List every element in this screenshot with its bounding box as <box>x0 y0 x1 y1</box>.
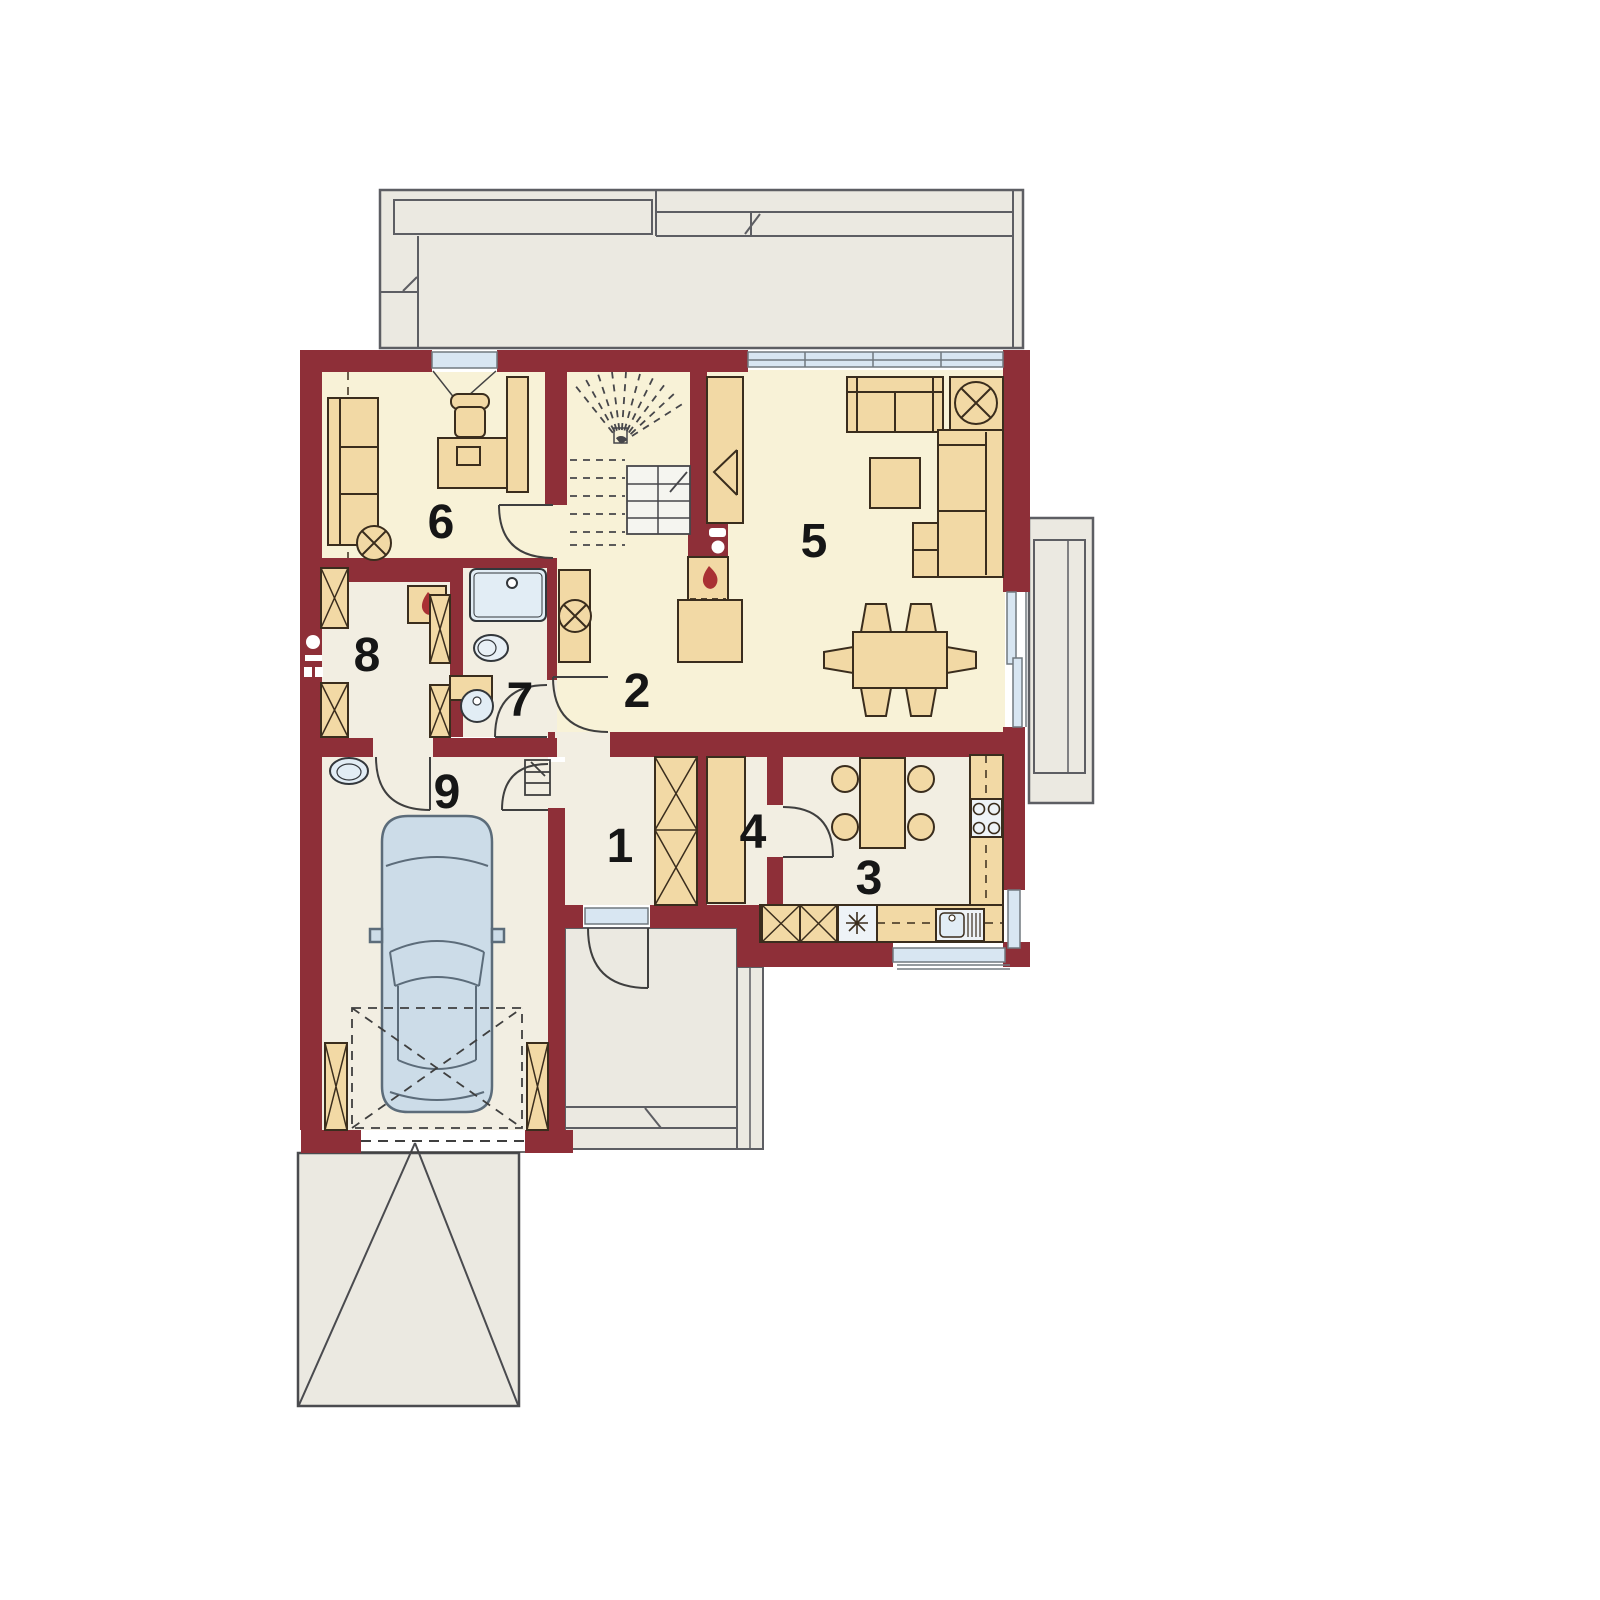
utility-cabinet-left-2 <box>321 683 348 737</box>
kitchen-chair <box>832 766 858 792</box>
kitchen-table <box>860 758 905 848</box>
chimney-vent <box>709 528 726 537</box>
porch-slab <box>565 928 737 1107</box>
dining-chair <box>947 647 976 673</box>
washbasin-tap <box>473 697 481 705</box>
toilet-icon <box>474 635 508 661</box>
terrace-top-slab <box>380 190 1023 348</box>
shower-drain <box>507 578 517 588</box>
kitchen-cabinet-x <box>762 905 800 942</box>
label-hall: 2 <box>624 665 651 718</box>
driveway <box>298 1143 519 1406</box>
kitchen-chair <box>832 814 858 840</box>
terrace-top <box>380 190 1023 348</box>
floor-plan-svg: 1 2 3 4 5 6 7 8 9 <box>0 0 1600 1600</box>
front-door-leaf <box>585 908 648 924</box>
stairs-lower-steps <box>627 466 690 534</box>
hall-cabinet-group <box>559 570 591 662</box>
label-pantry: 4 <box>740 806 767 859</box>
opening-utility-garage-door <box>373 738 433 757</box>
opening-office-door <box>545 505 567 560</box>
washbasin-icon <box>461 690 493 722</box>
office-sofa <box>328 398 378 545</box>
entry-wardrobe <box>655 757 697 905</box>
opening-hall-entry-door <box>555 732 610 757</box>
dining-chair <box>906 604 936 632</box>
dining-chair <box>861 688 891 716</box>
kitchen-chair <box>908 814 934 840</box>
driveway-slab <box>298 1153 519 1406</box>
kitchen-bottom-window <box>893 948 1005 962</box>
lamp-icon <box>357 526 391 560</box>
terrace-slider-panel-1 <box>1007 592 1016 664</box>
label-garage: 9 <box>434 766 461 819</box>
cooktop-icon <box>971 799 1002 837</box>
utility-cabinet-right-1 <box>430 595 450 663</box>
office-bookcase <box>507 377 528 492</box>
kitchen-window-sill <box>897 965 1010 969</box>
porch-step-2 <box>565 1128 737 1149</box>
label-bathroom: 7 <box>507 674 534 727</box>
kitchen-cabinet-x <box>800 905 837 942</box>
kitchen-sink-icon <box>936 909 984 941</box>
porch-step-1 <box>565 1107 737 1128</box>
label-utility: 8 <box>354 629 381 682</box>
lamp-icon <box>955 382 997 424</box>
fridge-icon <box>838 905 877 942</box>
label-kitchen: 3 <box>856 852 883 905</box>
terrace-right-slab <box>1029 518 1093 803</box>
chimney-flue-icon <box>712 541 725 554</box>
opening-pantry-door <box>767 805 783 857</box>
desk-chair-seat <box>455 407 485 437</box>
utility-cabinet-left-1 <box>321 568 348 628</box>
office-window <box>432 352 497 368</box>
dining-chair <box>824 647 853 673</box>
kitchen-chair <box>908 766 934 792</box>
lamp-icon <box>559 600 591 632</box>
car-mirror <box>370 929 382 942</box>
car-mirror <box>492 929 504 942</box>
label-office: 6 <box>428 496 455 549</box>
coffee-table <box>870 458 920 508</box>
label-entry: 1 <box>607 820 634 873</box>
floor-plan-page: 1 2 3 4 5 6 7 8 9 <box>0 0 1600 1600</box>
shower-icon <box>470 569 546 621</box>
terrace-slider-panel-2 <box>1013 658 1022 727</box>
opening-bath-door <box>547 680 557 737</box>
dining-table <box>853 632 947 688</box>
dining-chair <box>906 688 936 716</box>
label-living: 5 <box>801 515 828 568</box>
kitchen-side-window <box>1008 890 1020 948</box>
dining-chair <box>861 604 891 632</box>
hearth-platform <box>678 600 742 662</box>
terrace-right <box>1029 518 1093 803</box>
utility-cabinet-right-2 <box>430 685 450 737</box>
